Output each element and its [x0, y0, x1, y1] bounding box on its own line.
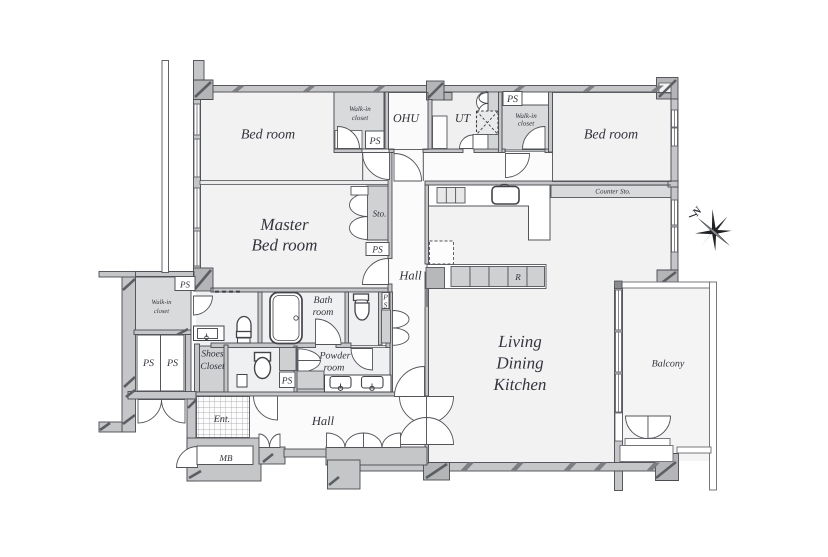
svg-text:Walk-in: Walk-in [349, 105, 371, 113]
svg-text:closet: closet [352, 114, 369, 122]
svg-text:R: R [514, 272, 521, 282]
svg-text:OHU: OHU [393, 111, 420, 125]
svg-text:Dining: Dining [495, 354, 543, 373]
svg-text:Bed room: Bed room [252, 236, 318, 255]
svg-text:Counter Sto.: Counter Sto. [595, 188, 631, 196]
svg-text:Bath: Bath [314, 295, 333, 306]
svg-text:PS: PS [368, 136, 380, 147]
svg-text:UT: UT [455, 111, 472, 125]
svg-text:Living: Living [497, 332, 541, 351]
svg-text:closet: closet [518, 120, 535, 128]
svg-text:PS: PS [506, 94, 518, 105]
svg-text:Powder: Powder [318, 351, 350, 362]
svg-text:S: S [384, 301, 388, 310]
svg-text:PS: PS [281, 377, 293, 387]
svg-text:room: room [324, 363, 345, 374]
svg-text:Bed room: Bed room [584, 128, 638, 143]
svg-text:Balcony: Balcony [652, 359, 685, 370]
svg-text:Shoes: Shoes [201, 350, 223, 360]
svg-text:Kitchen: Kitchen [493, 375, 547, 394]
svg-text:Walk-in: Walk-in [152, 299, 172, 306]
svg-text:Hall: Hall [311, 414, 335, 428]
svg-text:MB: MB [219, 453, 233, 463]
svg-text:Master: Master [259, 215, 309, 234]
svg-text:Ent.: Ent. [213, 414, 230, 425]
svg-text:Sto.: Sto. [373, 209, 387, 219]
svg-text:PS: PS [371, 246, 383, 256]
svg-text:closet: closet [154, 308, 169, 315]
svg-text:PS: PS [166, 358, 178, 369]
svg-text:PS: PS [142, 358, 154, 369]
svg-text:Hall: Hall [398, 269, 422, 283]
svg-text:room: room [313, 307, 334, 318]
svg-text:PS: PS [179, 280, 190, 290]
svg-text:Closet: Closet [200, 362, 225, 372]
svg-text:Bed room: Bed room [241, 128, 295, 143]
